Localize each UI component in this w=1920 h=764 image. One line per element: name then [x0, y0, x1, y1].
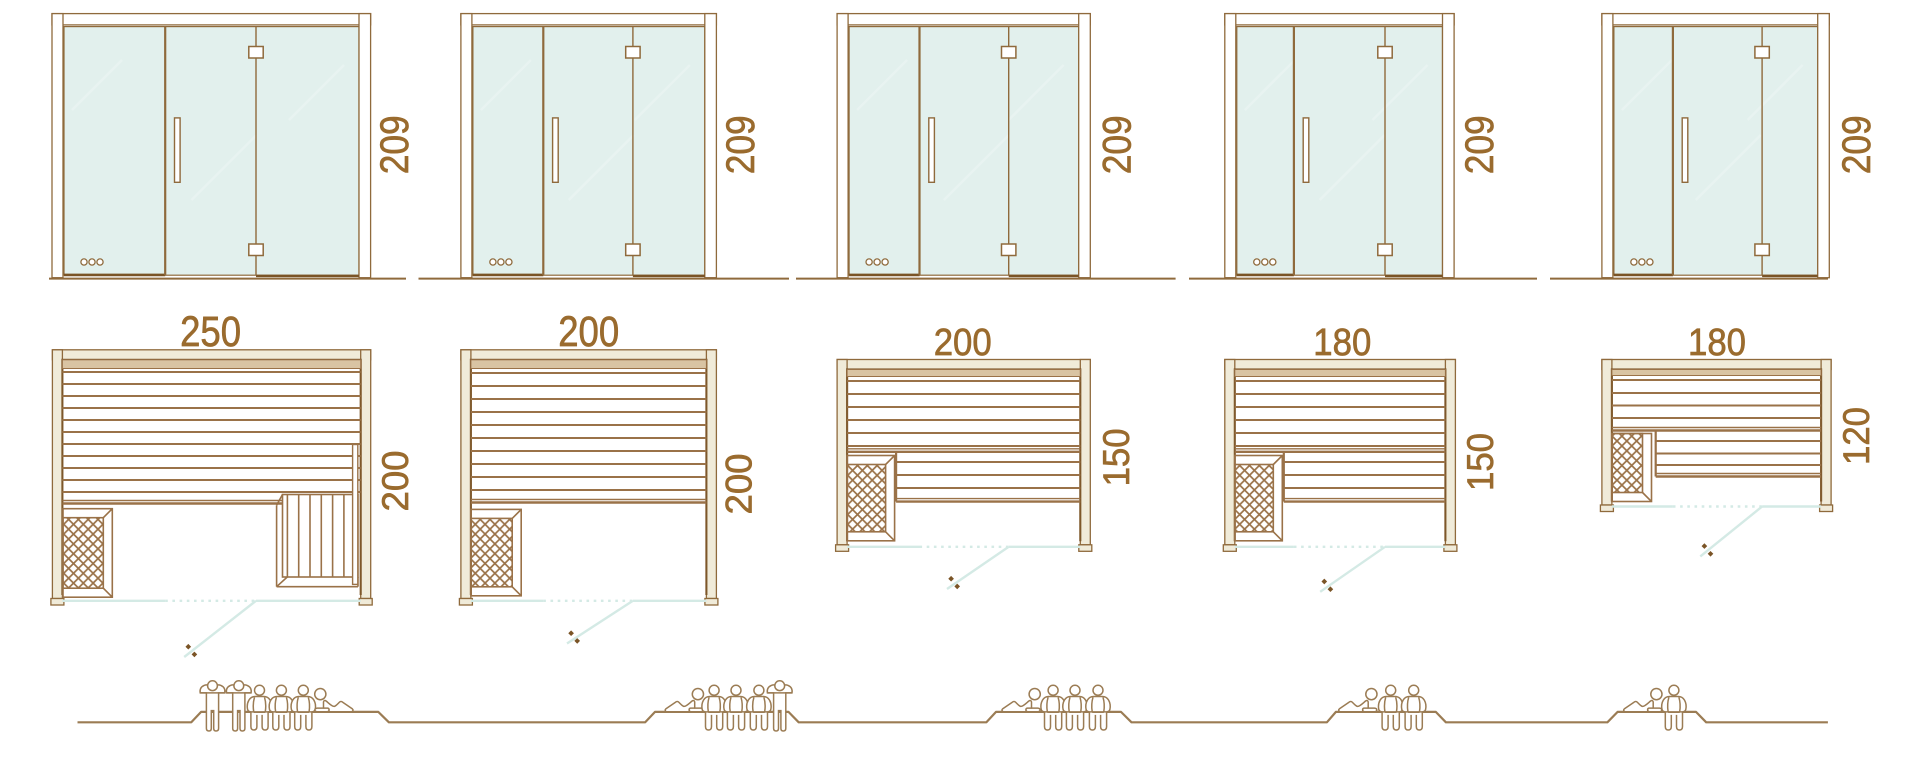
- svg-text:200: 200: [934, 322, 992, 364]
- svg-text:209: 209: [1458, 115, 1502, 174]
- svg-text:209: 209: [1095, 115, 1139, 174]
- svg-text:200: 200: [558, 308, 619, 356]
- svg-text:209: 209: [373, 115, 417, 174]
- svg-text:209: 209: [719, 115, 763, 174]
- svg-text:200: 200: [719, 454, 760, 515]
- svg-text:150: 150: [1096, 428, 1137, 486]
- svg-text:180: 180: [1313, 322, 1371, 364]
- svg-text:120: 120: [1836, 407, 1877, 465]
- svg-text:250: 250: [180, 308, 241, 356]
- svg-text:209: 209: [1835, 115, 1879, 174]
- svg-text:200: 200: [375, 451, 416, 512]
- svg-text:150: 150: [1460, 433, 1501, 491]
- svg-text:180: 180: [1688, 322, 1746, 364]
